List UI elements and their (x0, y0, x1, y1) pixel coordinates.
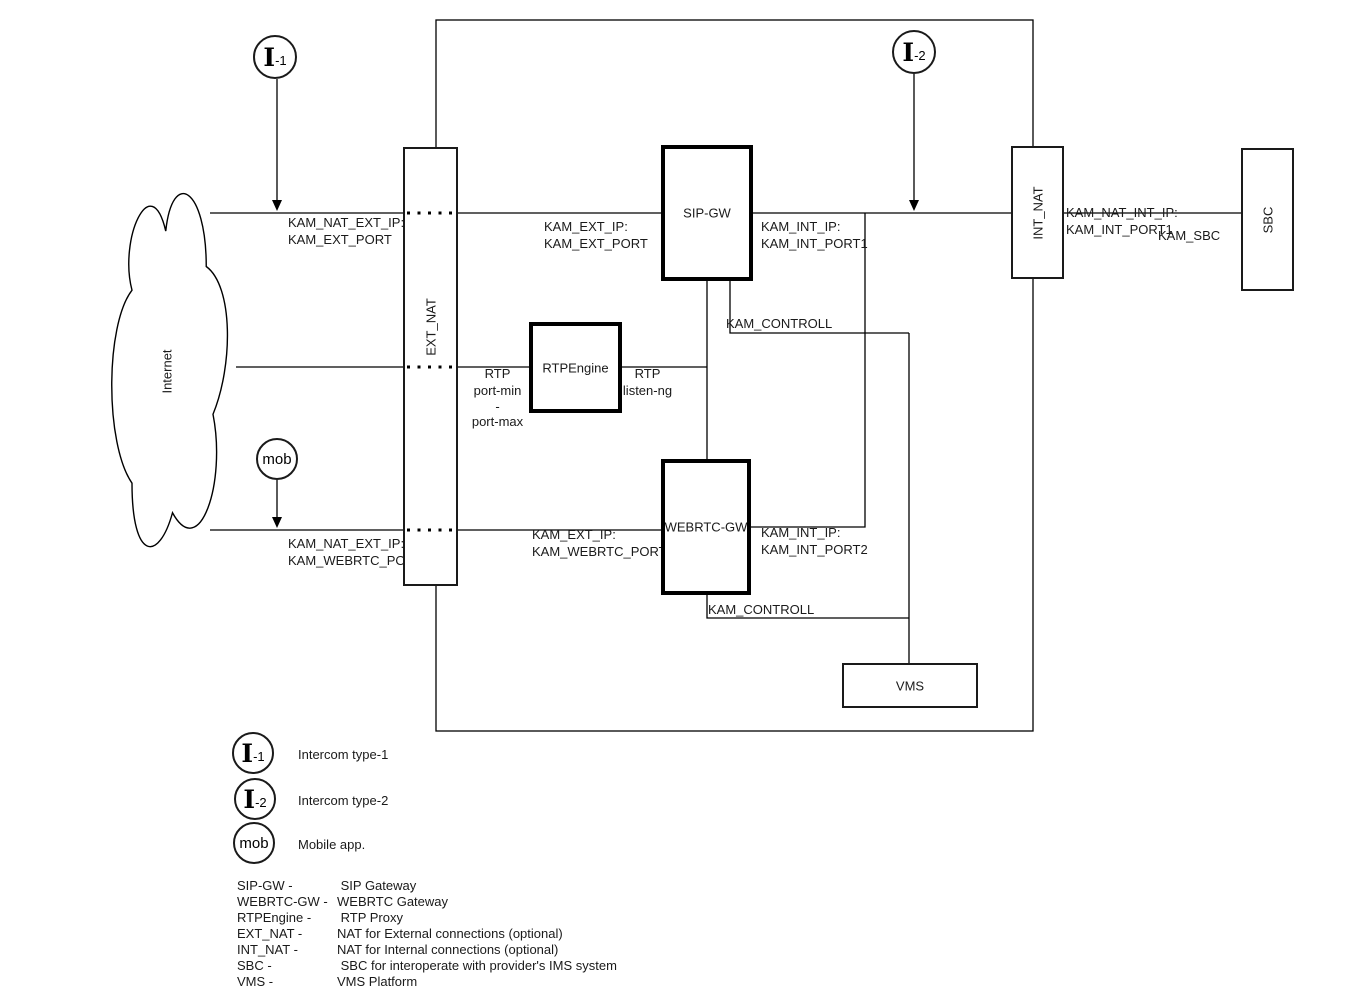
legend-mobile-label: Mobile app. (298, 837, 365, 852)
legend-intercom1-symbol: I (241, 741, 253, 766)
nat-passthrough-dots (0, 0, 1359, 1008)
legend-term-row: WEBRTC-GW -WEBRTC Gateway (237, 894, 617, 910)
legend-term-row: SIP-GW - SIP Gateway (237, 878, 617, 894)
legend-terms: SIP-GW - SIP Gateway WEBRTC-GW -WEBRTC G… (237, 878, 617, 990)
legend-intercom2-circle: I-2 (234, 778, 276, 820)
legend-intercom1-circle: I-1 (232, 732, 274, 774)
legend-intercom1-label: Intercom type-1 (298, 747, 388, 762)
legend-term-row: EXT_NAT -NAT for External connections (o… (237, 926, 617, 942)
legend-mobile-symbol: mob (239, 836, 268, 851)
diagram-canvas: Internet KAM_NAT_EXT_IP:KAM_EXT_PORT KAM… (0, 0, 1359, 1008)
legend-term-row: INT_NAT -NAT for Internal connections (o… (237, 942, 617, 958)
legend-term-row: VMS -VMS Platform (237, 974, 617, 990)
legend-intercom2-label: Intercom type-2 (298, 793, 388, 808)
legend-mobile-circle: mob (233, 822, 275, 864)
legend-term-row: SBC - SBC for interoperate with provider… (237, 958, 617, 974)
legend-intercom2-symbol: I (243, 787, 255, 812)
legend-term-row: RTPEngine - RTP Proxy (237, 910, 617, 926)
